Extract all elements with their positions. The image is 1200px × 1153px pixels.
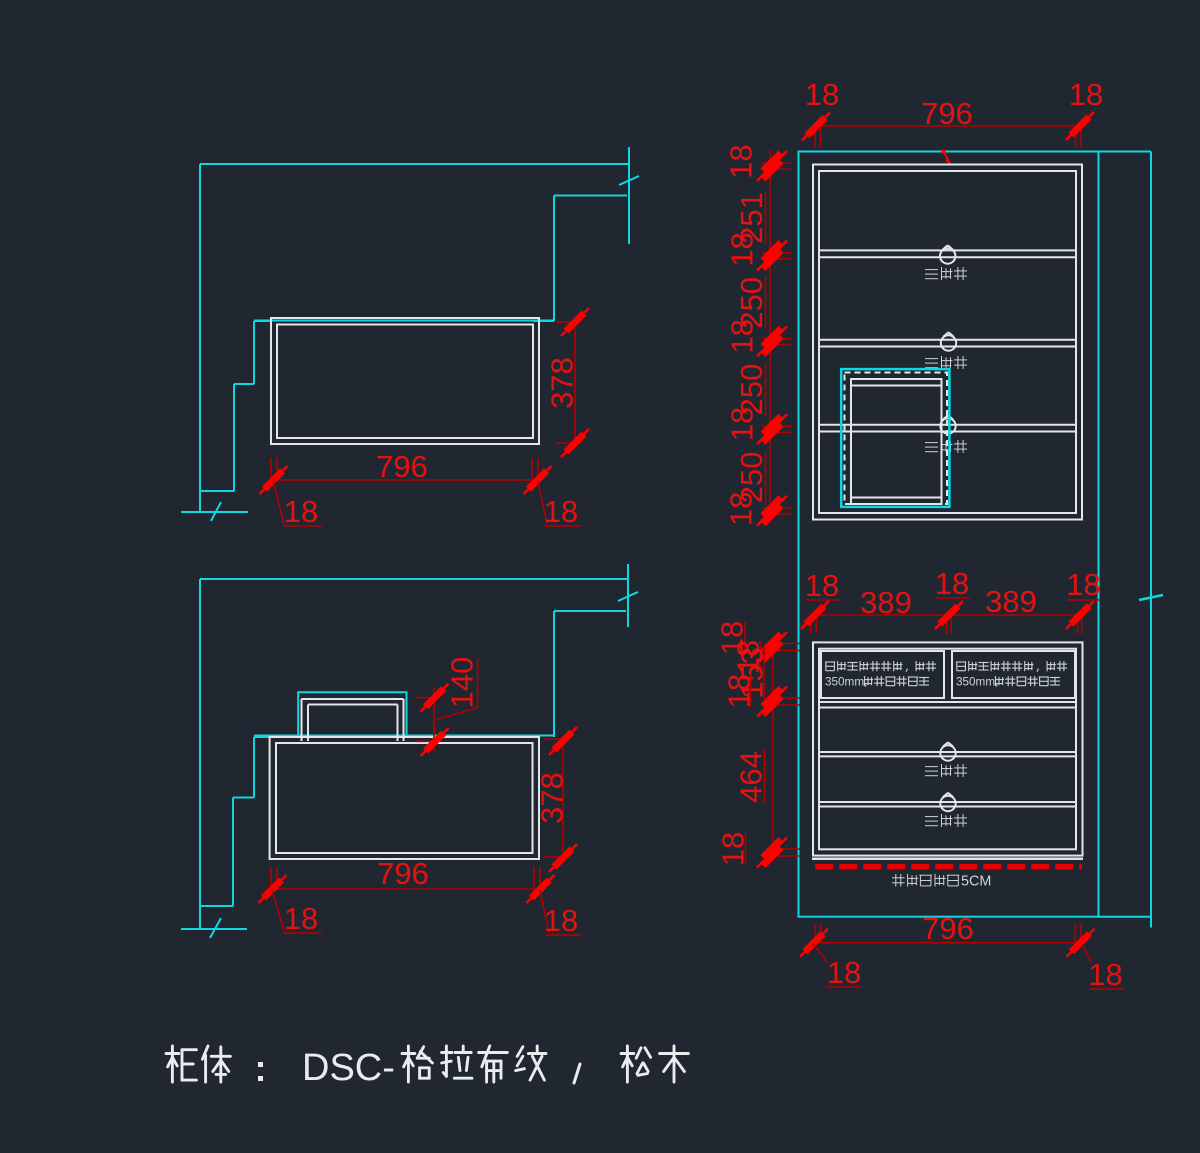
svg-text:350mm,: 350mm, [956,675,998,688]
svg-text:18: 18 [284,494,318,529]
svg-text:5CM: 5CM [961,874,991,890]
svg-text:DSC-: DSC- [302,1047,395,1089]
svg-text:18: 18 [725,232,760,266]
svg-text:18: 18 [284,901,318,936]
svg-text:796: 796 [376,449,428,484]
svg-text:140: 140 [445,657,480,709]
svg-text:378: 378 [535,772,570,824]
svg-text:18: 18 [724,492,759,526]
svg-text:18: 18 [935,566,969,601]
svg-text:796: 796 [377,856,429,891]
svg-text:18: 18 [1066,567,1100,602]
svg-text:18: 18 [725,319,760,353]
svg-text:350mm,: 350mm, [825,675,867,688]
svg-text:18: 18 [544,903,578,938]
svg-text:18: 18 [724,144,759,178]
svg-text:18: 18 [725,407,760,441]
svg-text:18: 18 [544,494,578,529]
svg-text:796: 796 [921,96,973,131]
svg-text:389: 389 [985,584,1037,619]
svg-text:796: 796 [922,911,974,946]
svg-text:389: 389 [860,585,912,620]
svg-text:464: 464 [734,751,769,803]
svg-text:18: 18 [1088,957,1122,992]
svg-text:378: 378 [545,357,580,409]
svg-text:18: 18 [805,568,839,603]
svg-text:18: 18 [1069,77,1103,112]
svg-text:18: 18 [827,955,861,990]
svg-text:18: 18 [805,77,839,112]
